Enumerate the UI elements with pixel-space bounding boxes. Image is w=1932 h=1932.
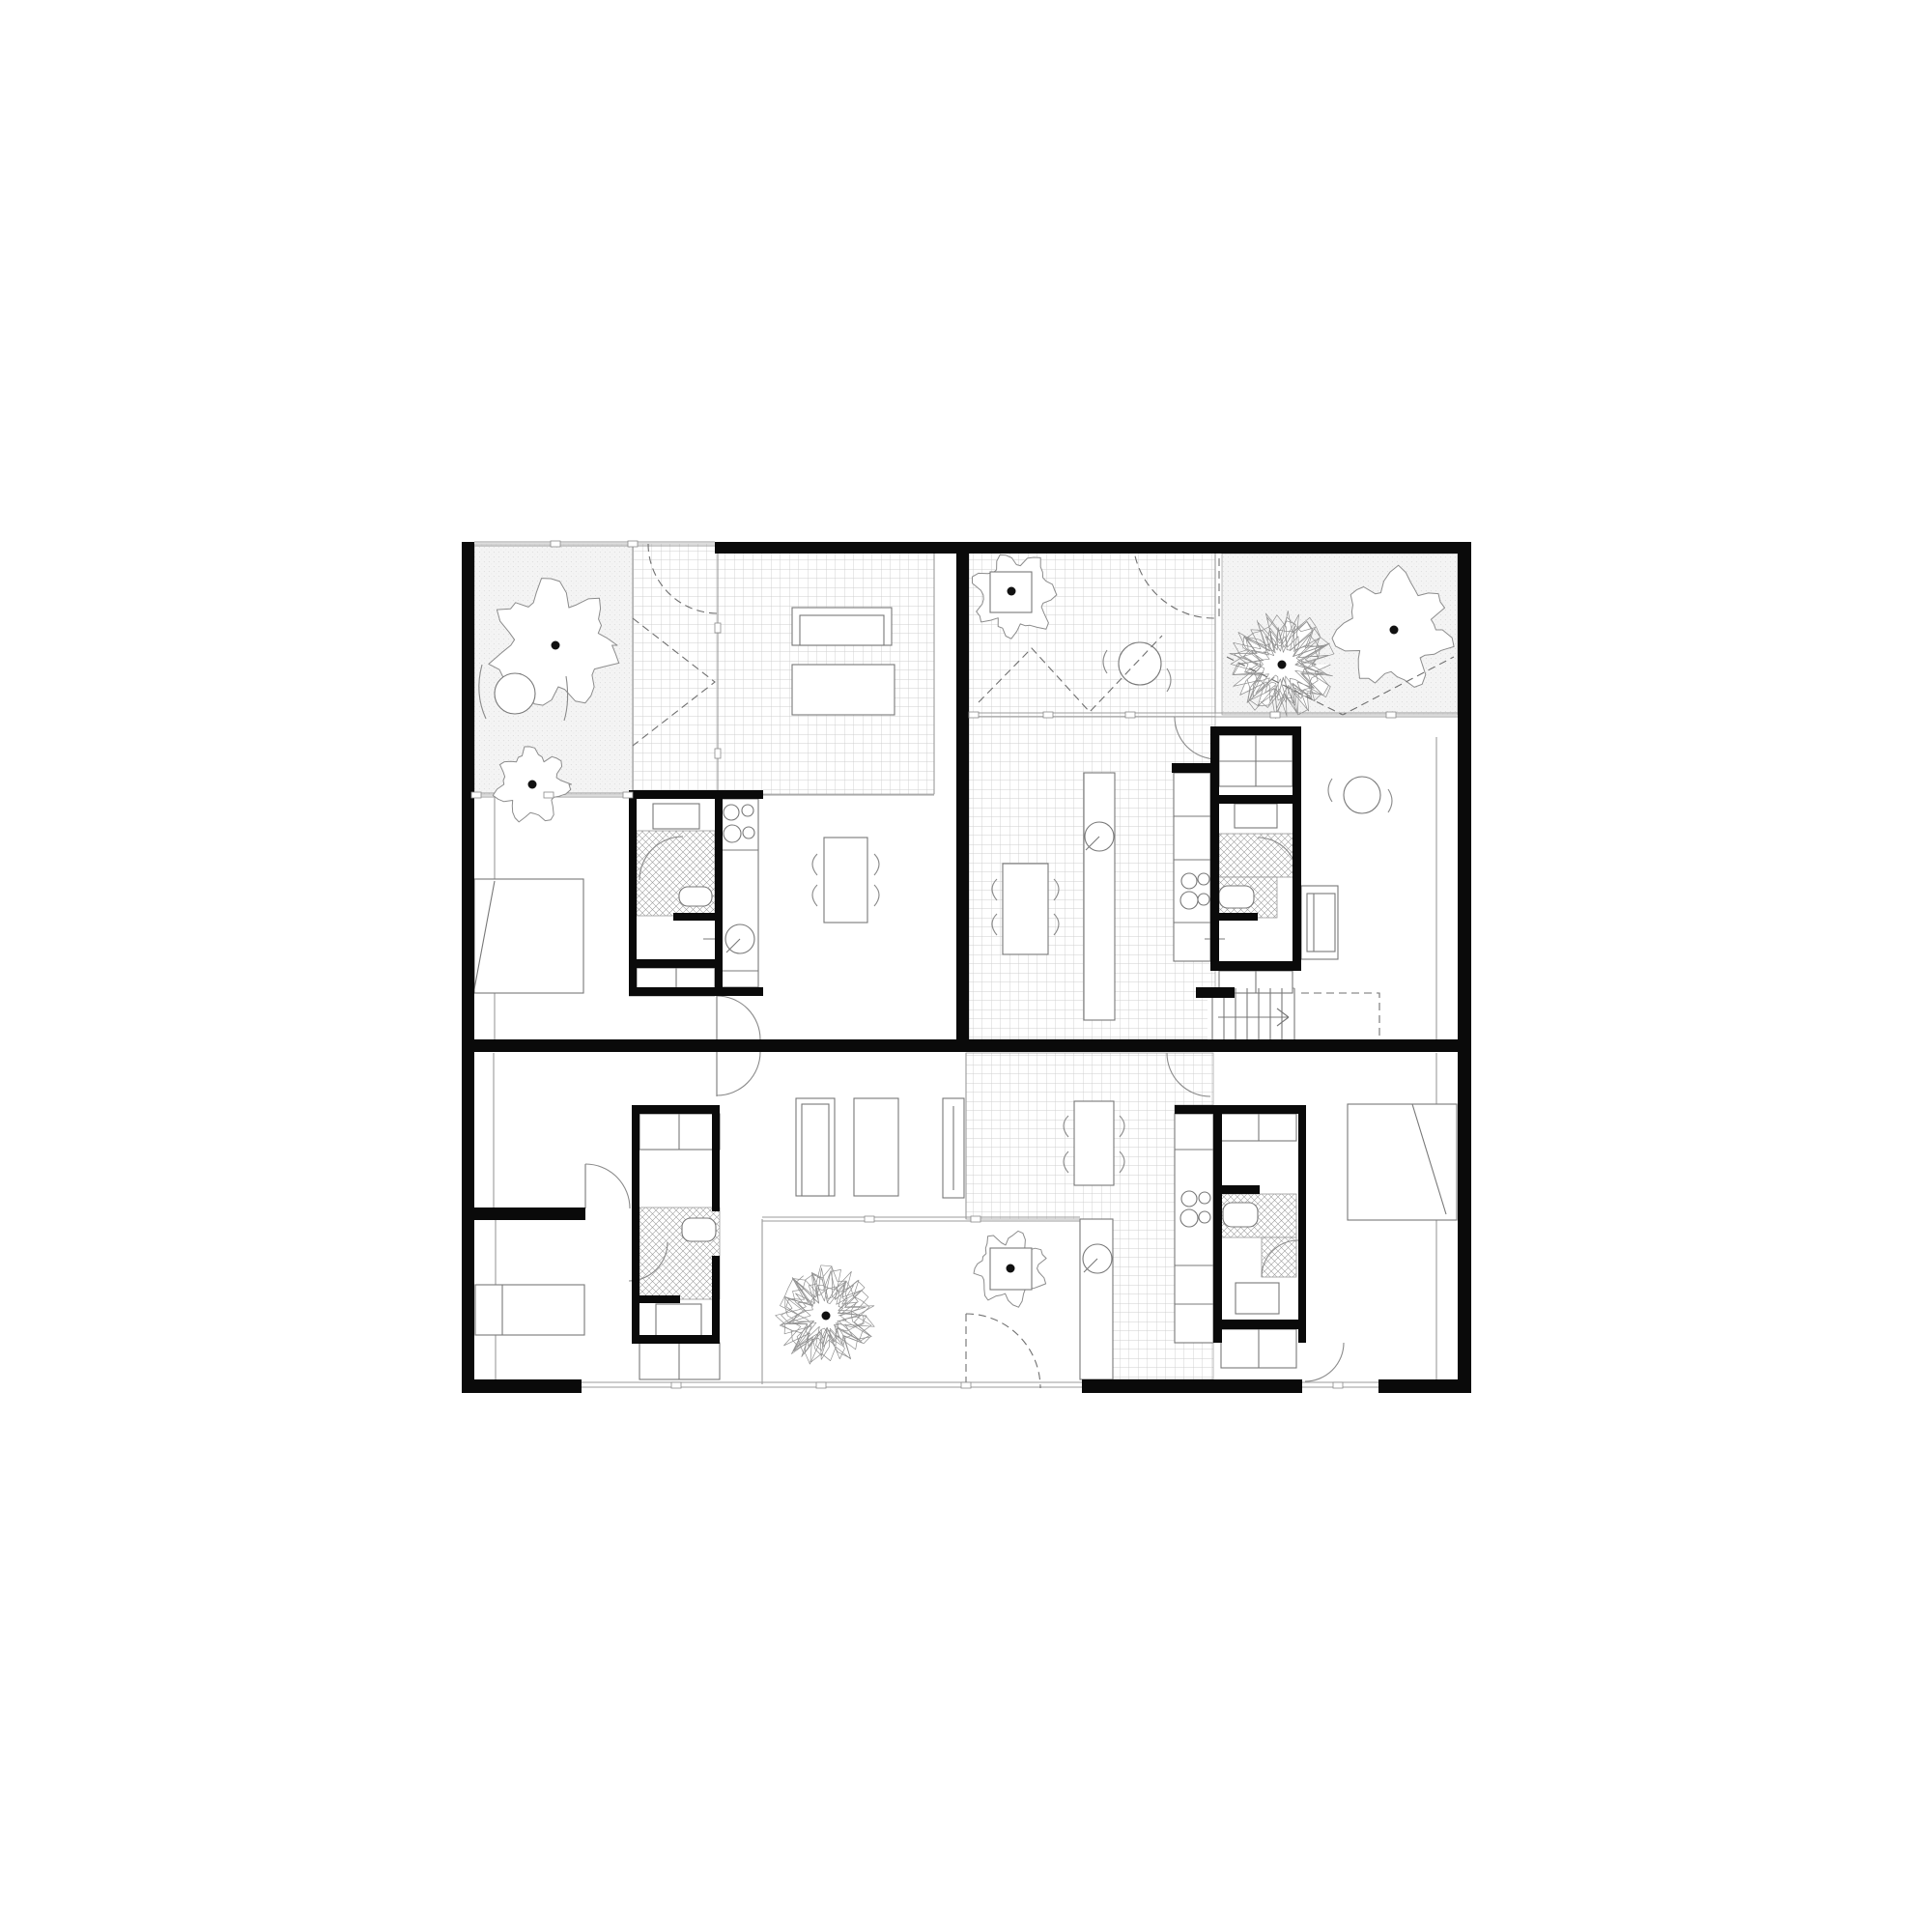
wall bbox=[1214, 795, 1293, 804]
wall bbox=[712, 1105, 720, 1211]
door-swing-arc bbox=[1305, 1343, 1344, 1381]
toilet-br bbox=[1223, 1203, 1258, 1227]
door-swing-arc bbox=[717, 996, 760, 1039]
tree-trunk-dot bbox=[1008, 587, 1016, 596]
tree-trunk-dot bbox=[1007, 1264, 1015, 1273]
glazing-tick bbox=[671, 1382, 681, 1388]
wall bbox=[462, 1207, 585, 1220]
wall bbox=[1210, 726, 1301, 735]
toilet-ur bbox=[1219, 886, 1254, 908]
glazing-tick bbox=[1386, 712, 1396, 718]
wall bbox=[462, 542, 474, 1393]
tree-trunk-dot bbox=[822, 1312, 831, 1321]
wall bbox=[712, 1256, 720, 1343]
fixture-circle bbox=[742, 805, 753, 816]
toilet-ul bbox=[679, 887, 712, 906]
wall bbox=[1210, 961, 1301, 971]
floor-plan-page bbox=[0, 0, 1932, 1932]
wall bbox=[1213, 1320, 1306, 1329]
floor-plan-drawing bbox=[0, 0, 1932, 1932]
table-ur-dining bbox=[1003, 864, 1048, 954]
glazing-tick bbox=[551, 541, 560, 547]
glazing-tick bbox=[471, 792, 481, 798]
sofa-ur-inner bbox=[1307, 894, 1335, 952]
patio-upper-left bbox=[633, 544, 718, 795]
fixture-circle bbox=[495, 673, 535, 714]
kitchen-island-ur bbox=[1084, 773, 1115, 1020]
shower-ur-a bbox=[1219, 834, 1299, 877]
wall bbox=[1293, 726, 1301, 971]
sofa-hall-2 bbox=[854, 1098, 898, 1196]
dashed-indication bbox=[1301, 993, 1379, 1039]
table-bottom-dining bbox=[1074, 1101, 1114, 1185]
glazing-tick bbox=[623, 792, 633, 798]
door-swing-arc bbox=[812, 885, 817, 906]
glazing-tick bbox=[969, 712, 979, 718]
wall bbox=[632, 1295, 680, 1303]
fixture-circle bbox=[1181, 873, 1197, 889]
glazing-tick bbox=[961, 1382, 971, 1388]
fixture-circle bbox=[1180, 892, 1198, 909]
tree-trunk-dot bbox=[1278, 661, 1287, 669]
glazing-tick bbox=[1043, 712, 1053, 718]
fixture-circle bbox=[1199, 1211, 1210, 1223]
fixture-circle bbox=[1199, 1192, 1210, 1204]
kitchen-counter-bottom bbox=[1175, 1114, 1213, 1343]
wall bbox=[629, 790, 763, 799]
daybed-ul bbox=[792, 665, 895, 715]
fixture-circle bbox=[1180, 1209, 1198, 1227]
wall bbox=[1298, 1105, 1306, 1343]
wall bbox=[1210, 726, 1219, 971]
table-ul-dining bbox=[824, 838, 867, 923]
toilet-bl bbox=[682, 1218, 716, 1241]
fixture-circle bbox=[1181, 1191, 1197, 1207]
fixture-circle bbox=[1119, 642, 1161, 685]
door-swing-arc bbox=[812, 854, 817, 875]
door-swing-arc bbox=[1388, 789, 1392, 812]
glazing-tick bbox=[1333, 1382, 1343, 1388]
wall bbox=[629, 959, 715, 968]
fixture-circle bbox=[724, 825, 741, 842]
glazing-tick bbox=[971, 1216, 980, 1222]
fixture-circle bbox=[743, 827, 754, 838]
wall bbox=[462, 1379, 582, 1393]
door-swing-arc bbox=[874, 854, 879, 875]
glazing-tick bbox=[628, 541, 638, 547]
door-swing-arc bbox=[585, 1164, 630, 1208]
wall bbox=[715, 790, 723, 988]
basin-ul bbox=[653, 804, 699, 829]
wall bbox=[1213, 1114, 1222, 1343]
tree-trunk-dot bbox=[528, 781, 537, 789]
wall bbox=[1458, 542, 1471, 1393]
wall bbox=[673, 913, 715, 921]
fixture-circle bbox=[1344, 777, 1380, 813]
glazing-tick bbox=[715, 623, 721, 633]
wall bbox=[956, 542, 969, 1039]
bed-lower-left bbox=[475, 1285, 584, 1335]
sofa-ul-inner bbox=[800, 615, 884, 645]
basin-ur bbox=[1235, 804, 1277, 828]
tree-trunk-dot bbox=[552, 641, 560, 650]
bed-upper-left bbox=[474, 879, 583, 993]
glazing-tick bbox=[1270, 712, 1280, 718]
wall bbox=[715, 542, 1471, 554]
glazing-tick bbox=[715, 749, 721, 758]
door-swing-arc bbox=[1328, 779, 1332, 802]
wall bbox=[462, 1039, 1471, 1052]
glazing-tick bbox=[865, 1216, 874, 1222]
fixture-circle bbox=[724, 805, 739, 820]
wall bbox=[632, 1335, 720, 1344]
basin-br bbox=[1236, 1283, 1279, 1314]
plan-layers bbox=[462, 541, 1471, 1393]
wall bbox=[1221, 1185, 1260, 1194]
kitchen-counter-ur bbox=[1174, 773, 1210, 961]
glazing-tick bbox=[1125, 712, 1135, 718]
tree-trunk-dot bbox=[1390, 626, 1399, 635]
wall bbox=[632, 1114, 639, 1343]
dashed-indication bbox=[966, 1314, 1040, 1388]
wall bbox=[1175, 1105, 1305, 1114]
basin-bl bbox=[656, 1304, 701, 1338]
wall bbox=[1215, 913, 1258, 921]
door-swing-arc bbox=[717, 1052, 760, 1095]
bed-lower-right bbox=[1348, 1104, 1457, 1220]
glazing-tick bbox=[544, 792, 554, 798]
wall bbox=[632, 1105, 720, 1114]
sofa-hall-1-inner bbox=[802, 1104, 829, 1196]
fixture-circle bbox=[1198, 873, 1209, 885]
wall bbox=[629, 987, 763, 996]
wall bbox=[1378, 1379, 1471, 1393]
door-swing-arc bbox=[874, 885, 879, 906]
fixture-circle bbox=[1198, 894, 1209, 905]
glazing-tick bbox=[816, 1382, 826, 1388]
wall bbox=[1196, 987, 1235, 998]
bench-courtyard bbox=[1080, 1219, 1113, 1379]
wall bbox=[1082, 1379, 1302, 1393]
